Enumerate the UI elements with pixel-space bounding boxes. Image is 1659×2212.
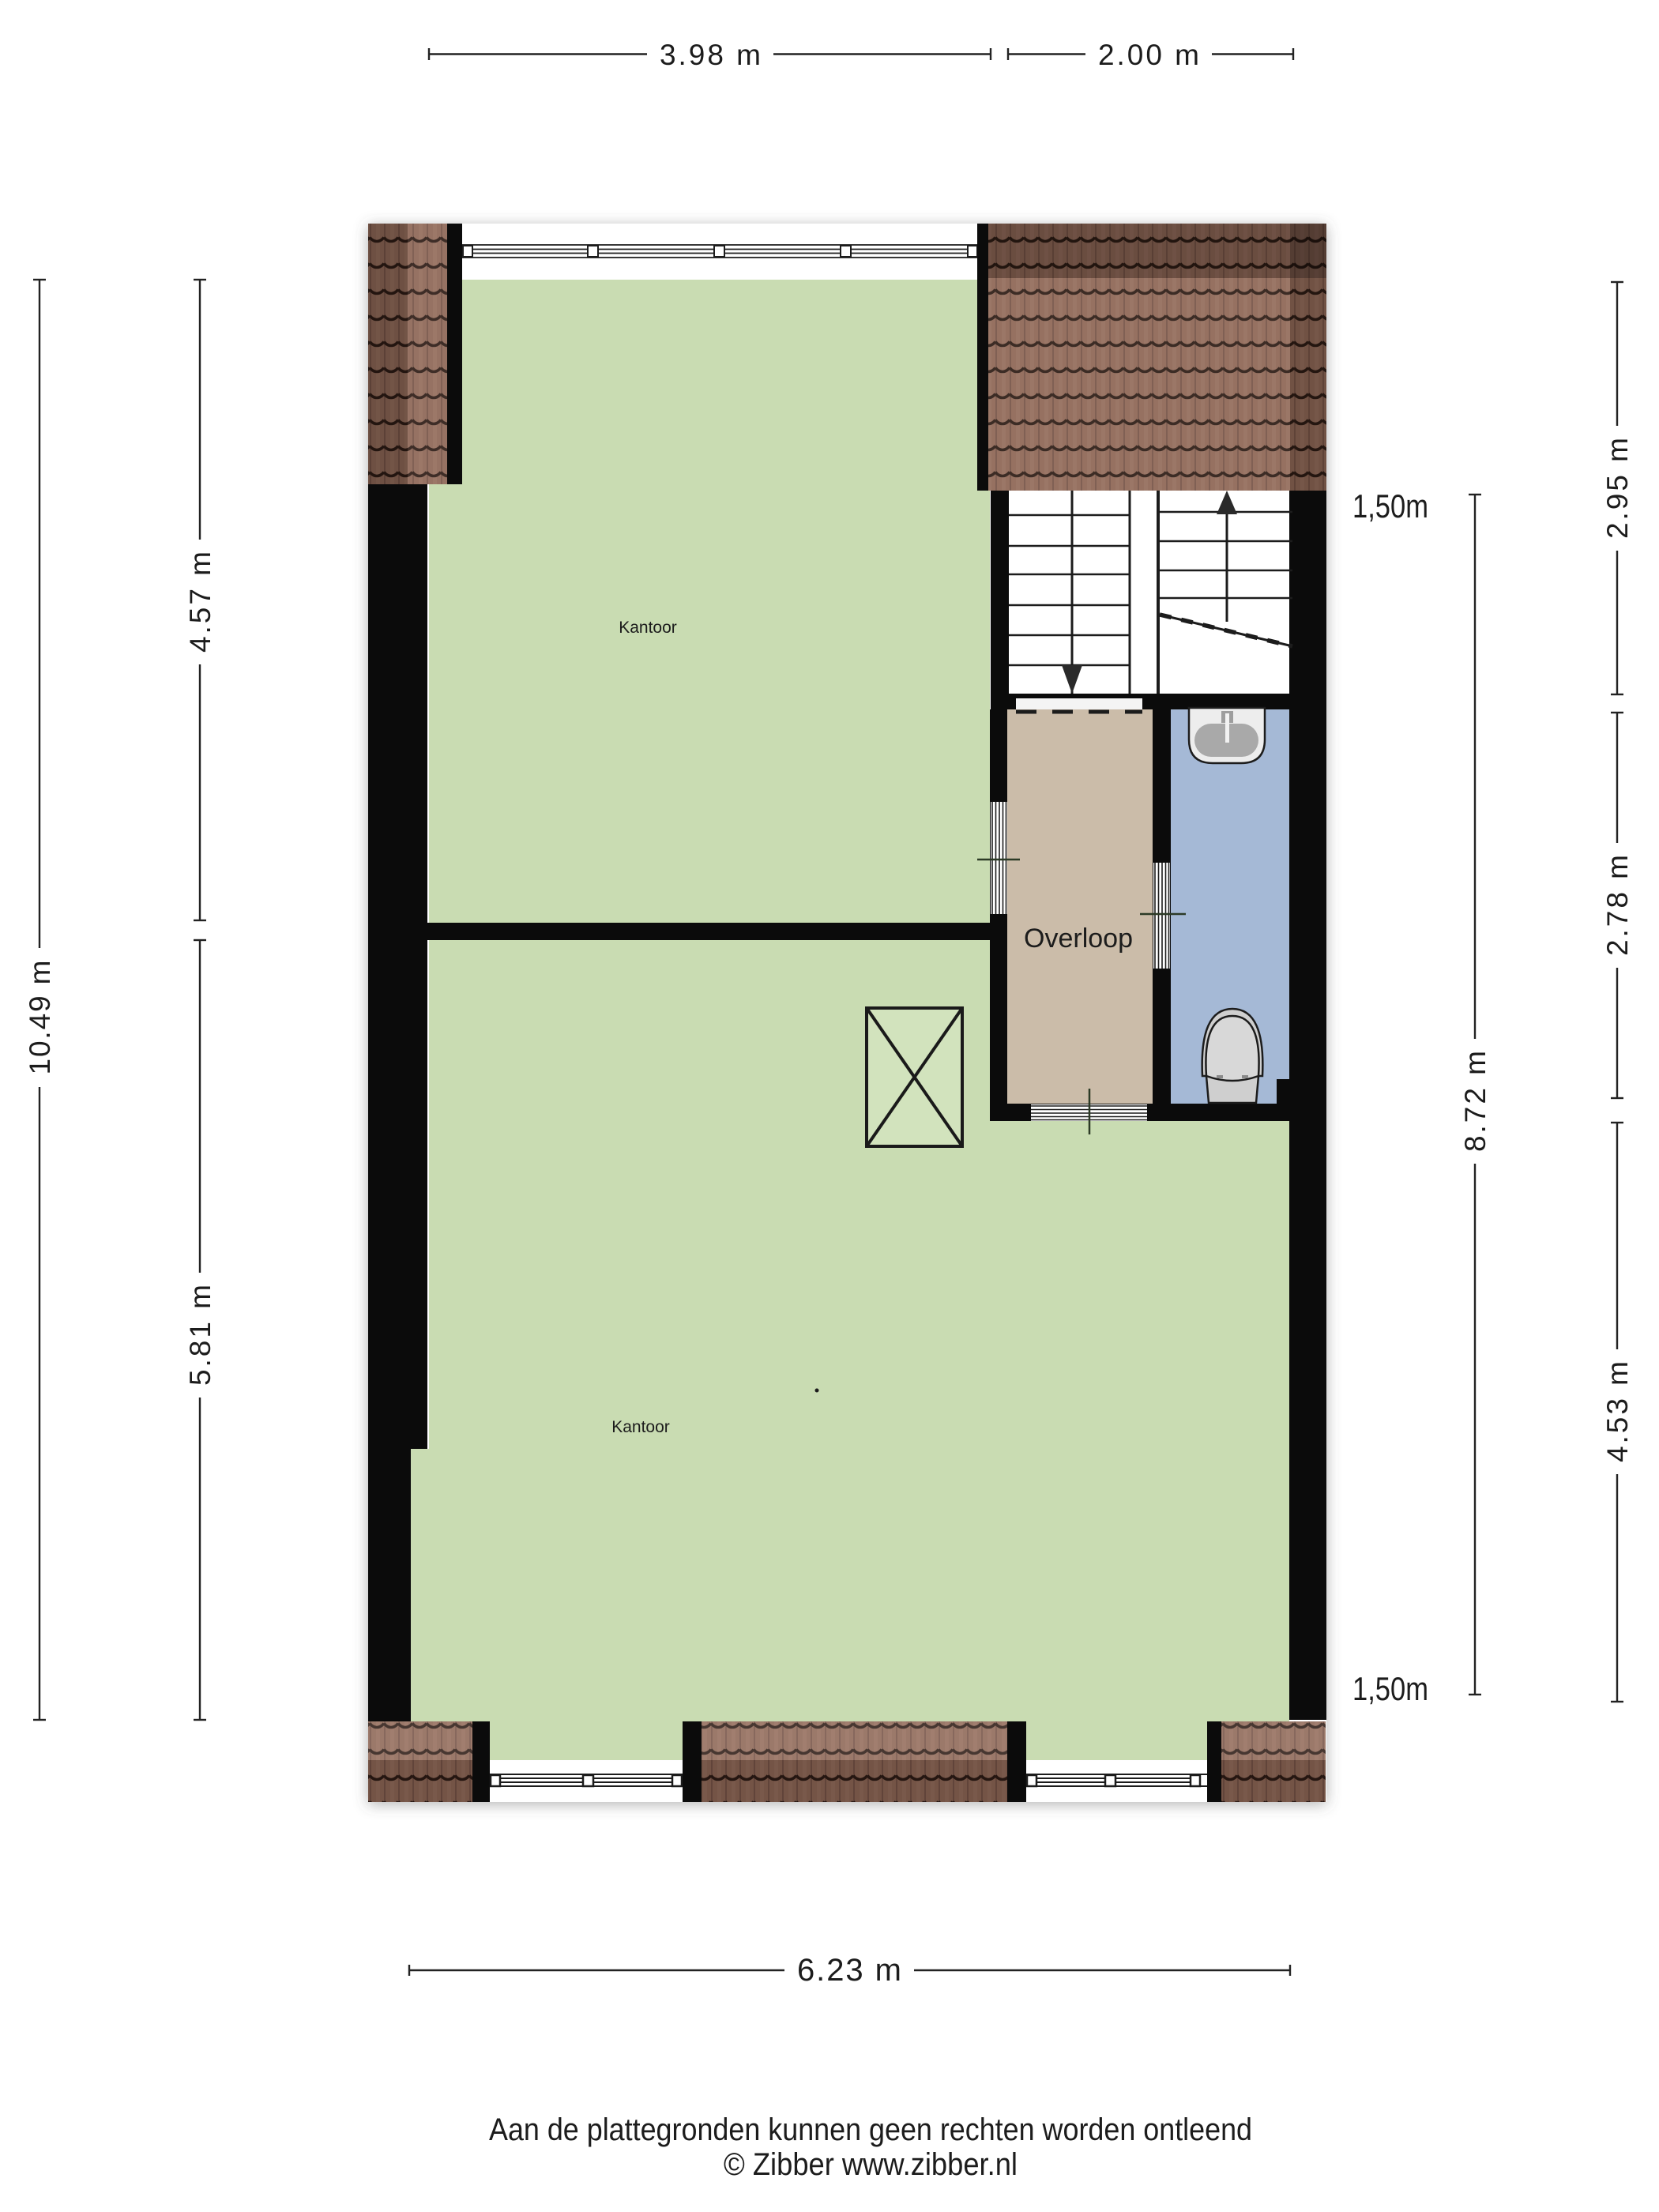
- svg-text:Overloop: Overloop: [1024, 924, 1133, 954]
- svg-text:1,50m: 1,50m: [1352, 1670, 1428, 1707]
- svg-text:4.53 m: 4.53 m: [1601, 1361, 1634, 1462]
- svg-text:6.23 m: 6.23 m: [797, 1953, 901, 1988]
- svg-text:10.49 m: 10.49 m: [24, 961, 56, 1075]
- svg-text:Aan de plattegronden kunnen ge: Aan de plattegronden kunnen geen rechten…: [489, 2112, 1252, 2147]
- svg-text:2.00 m: 2.00 m: [1098, 39, 1199, 71]
- svg-text:2.78 m: 2.78 m: [1601, 855, 1634, 956]
- svg-text:8.72 m: 8.72 m: [1459, 1051, 1492, 1152]
- svg-text:Kantoor: Kantoor: [619, 619, 677, 637]
- svg-text:1,50m: 1,50m: [1352, 487, 1428, 525]
- svg-text:2.95 m: 2.95 m: [1601, 438, 1634, 539]
- svg-text:3.98 m: 3.98 m: [660, 39, 761, 71]
- svg-text:5.81 m: 5.81 m: [184, 1285, 216, 1386]
- svg-text:© Zibber www.zibber.nl: © Zibber www.zibber.nl: [724, 2147, 1018, 2182]
- svg-text:Kantoor: Kantoor: [611, 1418, 670, 1436]
- svg-text:4.57 m: 4.57 m: [184, 551, 216, 653]
